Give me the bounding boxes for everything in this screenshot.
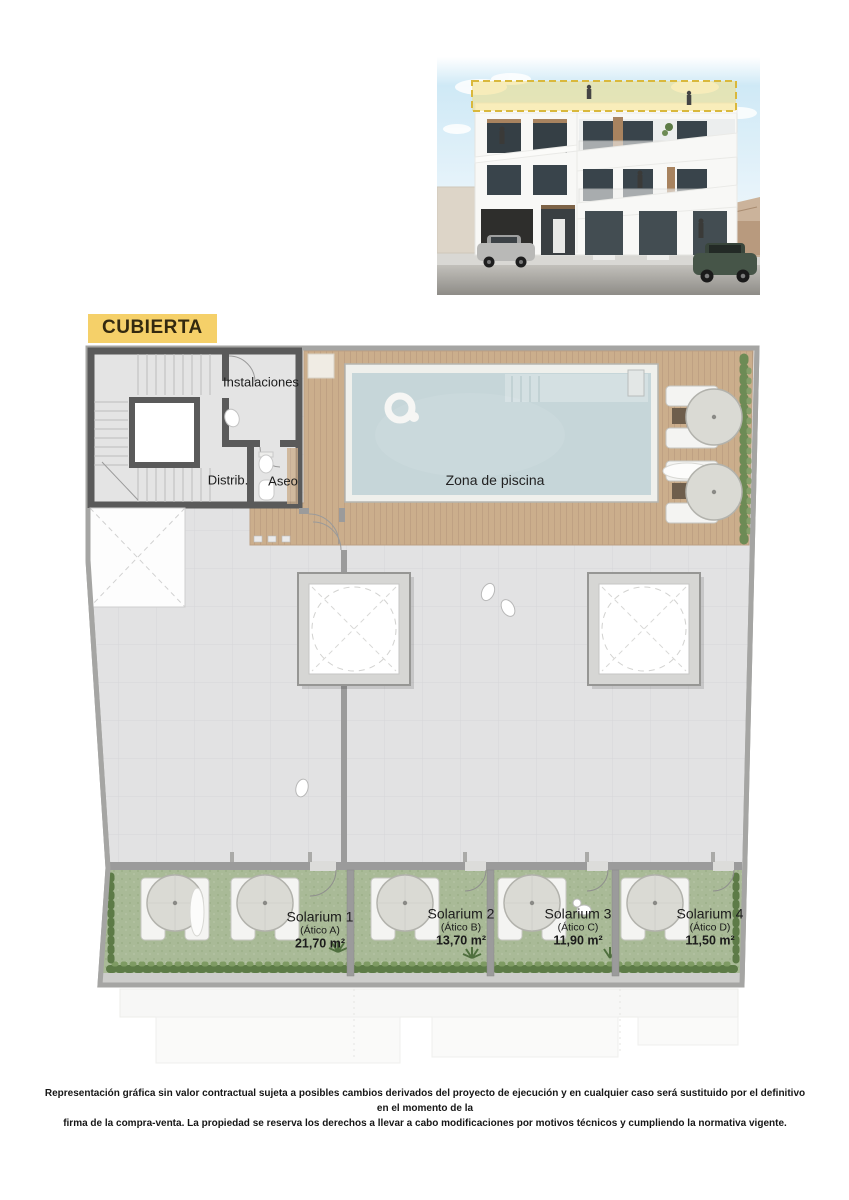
room-label-distribuidor: Distrib. (208, 473, 248, 488)
room-label-pool-zone: Zona de piscina (446, 472, 545, 488)
floor-plan (80, 340, 770, 1070)
rooftop-highlight (472, 81, 736, 111)
solarium-name: Solarium 2 (428, 906, 495, 922)
solarium-2-label: Solarium 2 (Ático B) 13,70 m² (428, 906, 495, 949)
page-title: CUBIERTA (88, 314, 217, 343)
solarium-name: Solarium 4 (677, 906, 744, 922)
lower-floor-ghost (120, 989, 738, 1063)
solarium-area: 21,70 m² (295, 937, 345, 951)
solarium-area: 11,90 m² (553, 934, 602, 948)
solarium-3-label: Solarium 3 (Ático C) 11,90 m² (545, 906, 612, 949)
sunbathing-person (190, 888, 204, 936)
room-label-aseo: Aseo (268, 474, 298, 489)
solarium-unit: (Ático C) (558, 922, 599, 934)
solarium-area: 13,70 m² (436, 934, 486, 948)
shower-strip (254, 536, 290, 542)
solarium-name: Solarium 3 (545, 906, 612, 922)
skylight-right (588, 573, 704, 689)
solarium-unit: (Ático A) (300, 925, 340, 937)
skylight-left (298, 573, 414, 689)
solarium-4-label: Solarium 4 (Ático D) 11,50 m² (677, 906, 744, 949)
solarium-1-label: Solarium 1 (Ático A) 21,70 m² (287, 909, 354, 952)
brochure-page: CUBIERTA (0, 0, 849, 1200)
pool-ladder (628, 370, 644, 396)
solarium-name: Solarium 1 (287, 909, 354, 925)
solarium-strip (100, 852, 742, 983)
disclaimer-line-1: Representación gráfica sin valor contrac… (40, 1086, 810, 1116)
elevator-shaft (132, 400, 197, 465)
solarium-unit: (Ático B) (441, 922, 481, 934)
void-patio (90, 508, 185, 607)
building-render (437, 57, 760, 295)
disclaimer-line-2: firma de la compra-venta. La propiedad s… (40, 1116, 810, 1131)
legal-disclaimer: Representación gráfica sin valor contrac… (40, 1086, 810, 1131)
room-label-instalaciones: Instalaciones (223, 375, 299, 390)
solarium-unit: (Ático D) (690, 922, 731, 934)
solarium-area: 11,50 m² (685, 934, 734, 948)
